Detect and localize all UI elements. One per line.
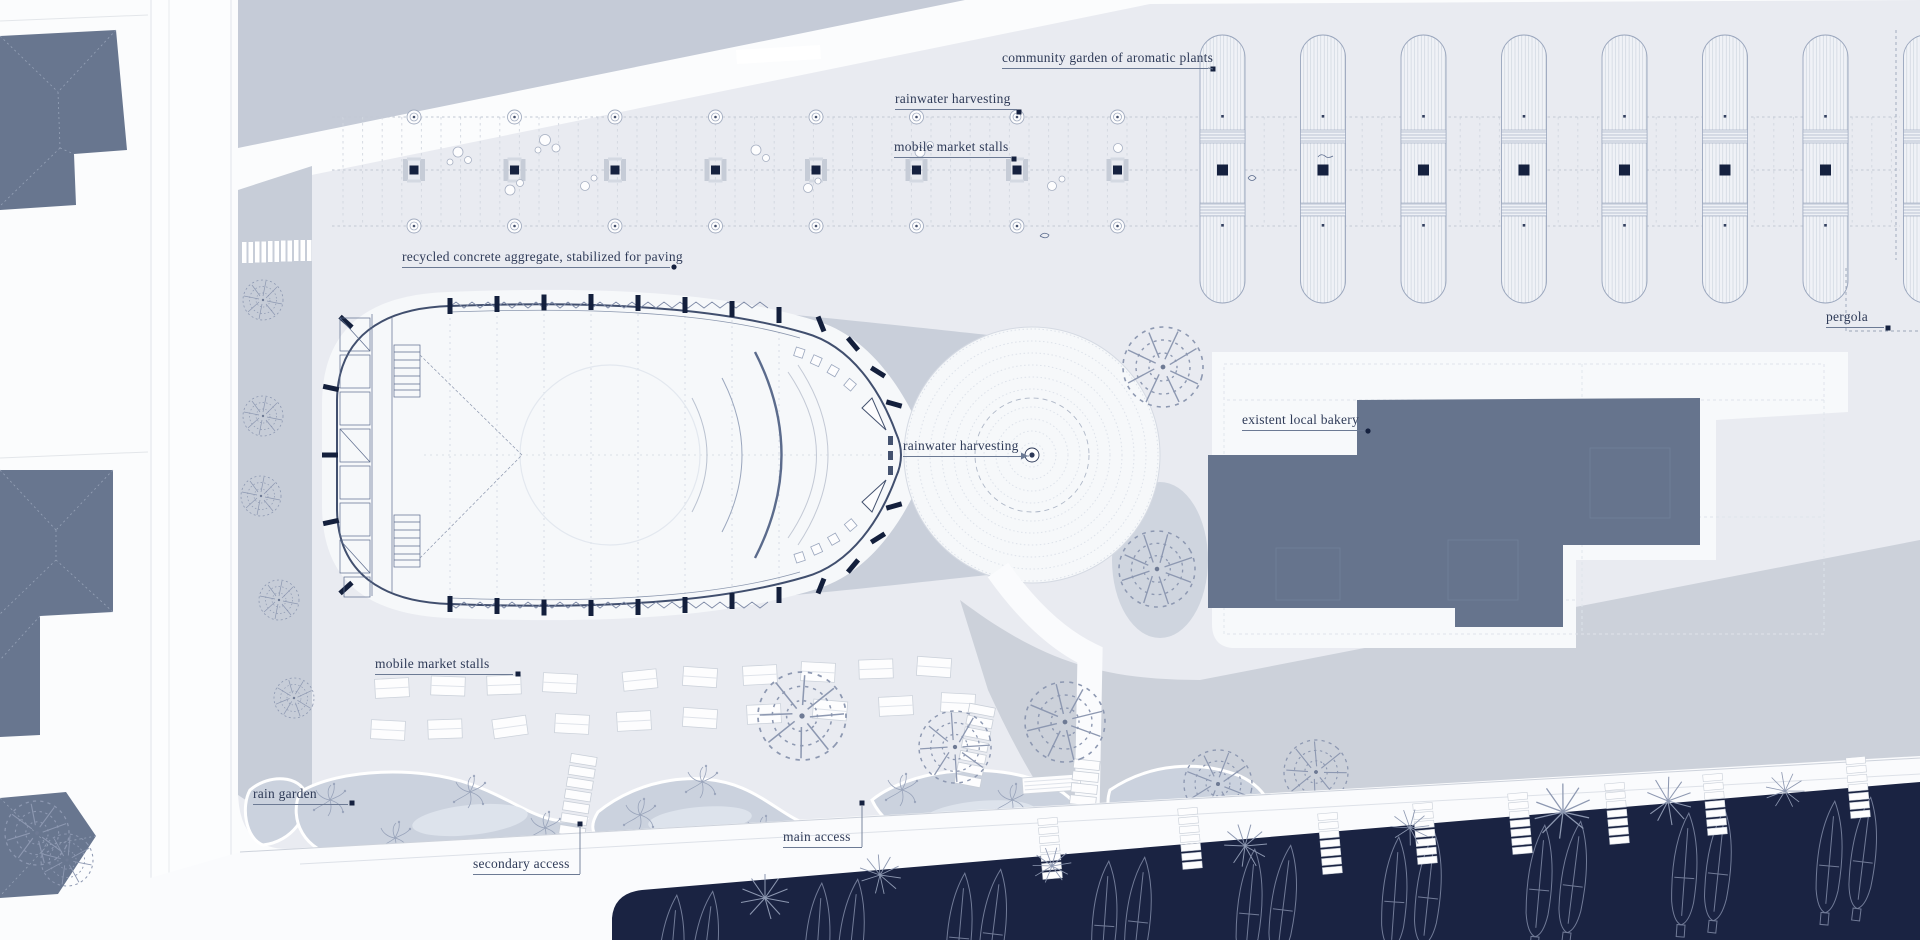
site-plan-drawing [0,0,1920,940]
market-hall [322,290,930,620]
circular-plaza [904,327,1160,583]
crosswalk [242,240,312,263]
street-west [150,0,232,940]
market-strip [332,110,1900,233]
site-plan-canvas: community garden of aromatic plants rain… [0,0,1920,940]
